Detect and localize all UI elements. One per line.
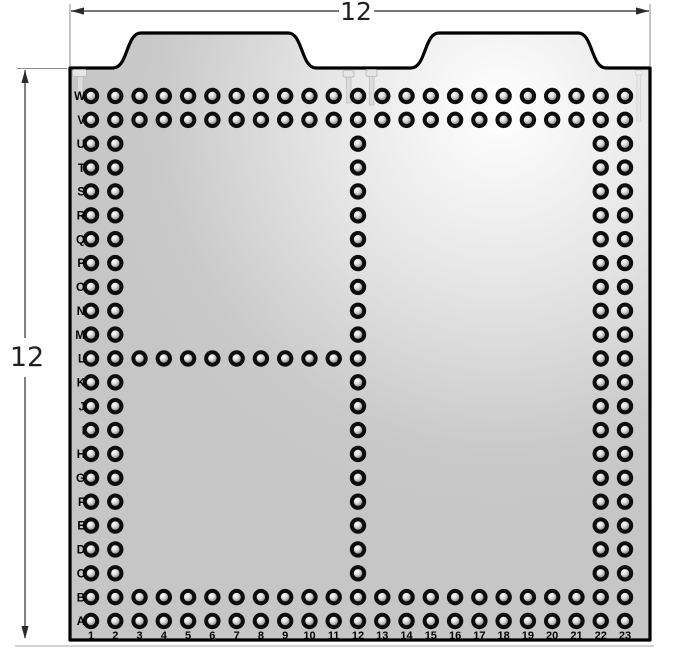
hole [83, 279, 99, 295]
row-label: R [77, 211, 86, 223]
hole [617, 422, 633, 438]
hole [131, 589, 147, 605]
hole [204, 88, 220, 104]
row-label: B [77, 592, 85, 604]
hole [350, 136, 366, 152]
hole [350, 613, 366, 629]
arrowhead-up [21, 70, 28, 83]
hole [350, 398, 366, 414]
hole [107, 374, 123, 390]
hole [471, 88, 487, 104]
arrowhead-left [71, 7, 84, 14]
column-label: 1 [88, 630, 94, 642]
column-label: 15 [425, 630, 437, 642]
left-dimension-value: 12 [10, 342, 44, 373]
hole [398, 613, 414, 629]
hole [131, 88, 147, 104]
hole [107, 565, 123, 581]
column-label: 3 [136, 630, 142, 642]
hole [423, 589, 439, 605]
hole [593, 422, 609, 438]
hole [83, 493, 99, 509]
hole [277, 112, 293, 128]
hole [617, 446, 633, 462]
hole [568, 589, 584, 605]
hole [107, 517, 123, 533]
hole [423, 88, 439, 104]
hole [83, 422, 99, 438]
hole [131, 350, 147, 366]
hole [156, 350, 172, 366]
column-label: 9 [282, 630, 288, 642]
hole [277, 589, 293, 605]
hole [350, 207, 366, 223]
hole [83, 470, 99, 486]
hole [228, 350, 244, 366]
hole [326, 350, 342, 366]
hole [350, 350, 366, 366]
hole [617, 207, 633, 223]
hole [107, 493, 123, 509]
top-dimension-value: 12 [340, 0, 372, 26]
hole [593, 255, 609, 271]
hole [204, 112, 220, 128]
hole [180, 589, 196, 605]
column-label: 17 [473, 630, 485, 642]
hole [593, 350, 609, 366]
hole [617, 589, 633, 605]
arrowhead-right [636, 7, 649, 14]
column-label: 18 [498, 630, 510, 642]
hole [423, 112, 439, 128]
hole [83, 326, 99, 342]
column-label: 11 [328, 630, 340, 642]
hole [617, 613, 633, 629]
hole [156, 112, 172, 128]
hole [471, 112, 487, 128]
hole [301, 88, 317, 104]
column-label: 14 [400, 630, 413, 642]
hole [447, 112, 463, 128]
hole [83, 446, 99, 462]
hole [83, 398, 99, 414]
hole [374, 613, 390, 629]
hole [593, 231, 609, 247]
hole [350, 159, 366, 175]
row-label: H [77, 449, 85, 461]
hole [107, 112, 123, 128]
hole [204, 613, 220, 629]
hole [350, 517, 366, 533]
hole [253, 112, 269, 128]
hole [107, 136, 123, 152]
row-label: C [77, 568, 85, 580]
hole [83, 112, 99, 128]
hole [447, 88, 463, 104]
hole [301, 613, 317, 629]
hole [350, 493, 366, 509]
row-label: N [77, 306, 85, 318]
hole [617, 350, 633, 366]
hole [374, 589, 390, 605]
hole [617, 159, 633, 175]
hole [180, 613, 196, 629]
hole [228, 589, 244, 605]
hole [107, 446, 123, 462]
hole [107, 422, 123, 438]
hole [617, 303, 633, 319]
hole [471, 613, 487, 629]
hole [398, 88, 414, 104]
hole [568, 613, 584, 629]
hole [593, 446, 609, 462]
hole [617, 88, 633, 104]
pegboard-drawing: WVUTSRQPONMLKJIHGFEDCBA 1234567891011121… [0, 0, 676, 651]
hole [83, 231, 99, 247]
hole [326, 112, 342, 128]
hole [495, 589, 511, 605]
hole [83, 183, 99, 199]
hole [350, 255, 366, 271]
hole [326, 589, 342, 605]
hole [568, 112, 584, 128]
hole [495, 88, 511, 104]
hole [107, 613, 123, 629]
hole [617, 398, 633, 414]
hole [156, 589, 172, 605]
hole [593, 183, 609, 199]
hole [107, 398, 123, 414]
hole [301, 350, 317, 366]
hole [593, 565, 609, 581]
hole [253, 589, 269, 605]
hole [301, 112, 317, 128]
column-label: 5 [185, 630, 191, 642]
hole [544, 88, 560, 104]
hole [107, 231, 123, 247]
row-label: J [79, 401, 85, 413]
hole [83, 374, 99, 390]
hole [83, 303, 99, 319]
hole [204, 589, 220, 605]
hole [617, 112, 633, 128]
hole [350, 326, 366, 342]
column-label: 19 [522, 630, 534, 642]
hole [398, 589, 414, 605]
hole [180, 350, 196, 366]
hole [495, 613, 511, 629]
hole [107, 279, 123, 295]
row-label: A [77, 616, 85, 628]
column-label: 23 [619, 630, 631, 642]
row-label: G [76, 473, 85, 485]
row-label: T [78, 163, 85, 175]
hole [156, 88, 172, 104]
hole [301, 589, 317, 605]
hole [131, 112, 147, 128]
drawing-canvas: WVUTSRQPONMLKJIHGFEDCBA 1234567891011121… [0, 0, 676, 651]
hole [83, 255, 99, 271]
hole [617, 136, 633, 152]
hole [107, 207, 123, 223]
hole [593, 279, 609, 295]
hole [83, 541, 99, 557]
hole [374, 112, 390, 128]
hole [593, 493, 609, 509]
column-label: 7 [234, 630, 240, 642]
hole [83, 207, 99, 223]
hole [398, 112, 414, 128]
hole [617, 183, 633, 199]
hole [593, 374, 609, 390]
row-label: U [77, 139, 85, 151]
row-label: P [77, 258, 85, 270]
hole [350, 446, 366, 462]
hole [107, 541, 123, 557]
row-label: K [77, 378, 86, 390]
hole [495, 112, 511, 128]
hole [423, 613, 439, 629]
hole [520, 88, 536, 104]
hole [617, 493, 633, 509]
hole [593, 541, 609, 557]
arrowhead-down [21, 626, 28, 639]
row-label: I [82, 425, 85, 437]
hole [447, 589, 463, 605]
hole [253, 88, 269, 104]
row-label: S [77, 187, 85, 199]
hole [617, 470, 633, 486]
hole [520, 112, 536, 128]
hole [617, 565, 633, 581]
column-label: 21 [570, 630, 582, 642]
hole [107, 159, 123, 175]
column-label: 13 [376, 630, 388, 642]
hole [253, 350, 269, 366]
hole [83, 517, 99, 533]
hole [544, 589, 560, 605]
hole [228, 613, 244, 629]
hole [156, 613, 172, 629]
column-label: 16 [449, 630, 461, 642]
hole [83, 136, 99, 152]
hole [617, 279, 633, 295]
hole [277, 350, 293, 366]
row-label: W [74, 91, 85, 103]
hole [107, 255, 123, 271]
hole [350, 183, 366, 199]
column-label: 10 [303, 630, 315, 642]
column-label: 6 [209, 630, 215, 642]
row-label: O [76, 282, 85, 294]
hole [277, 88, 293, 104]
hole [617, 374, 633, 390]
hole [228, 112, 244, 128]
hole [593, 517, 609, 533]
column-label: 8 [258, 630, 264, 642]
hole [83, 350, 99, 366]
hole [107, 326, 123, 342]
hole [350, 112, 366, 128]
hole [83, 613, 99, 629]
hole [350, 422, 366, 438]
hole [593, 470, 609, 486]
hole [350, 470, 366, 486]
hole [107, 589, 123, 605]
hole [593, 112, 609, 128]
row-label: V [77, 115, 85, 127]
hole [593, 589, 609, 605]
hole [326, 88, 342, 104]
hole [471, 589, 487, 605]
hole [83, 589, 99, 605]
hole [107, 303, 123, 319]
hole [617, 231, 633, 247]
hole [544, 613, 560, 629]
hole [326, 613, 342, 629]
column-label: 20 [546, 630, 558, 642]
hole [350, 541, 366, 557]
hole [520, 613, 536, 629]
column-label: 4 [161, 630, 168, 642]
hole [180, 112, 196, 128]
hole [83, 88, 99, 104]
hole [617, 541, 633, 557]
hole [107, 88, 123, 104]
hole [544, 112, 560, 128]
hole [593, 398, 609, 414]
hole [593, 207, 609, 223]
hole [593, 159, 609, 175]
hole [228, 88, 244, 104]
hole [374, 88, 390, 104]
hole [350, 589, 366, 605]
hole [83, 159, 99, 175]
column-label: 22 [595, 630, 607, 642]
column-label: 2 [112, 630, 118, 642]
hole [107, 183, 123, 199]
hole [83, 565, 99, 581]
hole [447, 613, 463, 629]
column-label: 12 [352, 630, 364, 642]
row-label: Q [76, 234, 85, 246]
row-label: L [78, 354, 85, 366]
hole [568, 88, 584, 104]
hole [277, 613, 293, 629]
hole [131, 613, 147, 629]
row-label: D [77, 545, 85, 557]
hole [350, 565, 366, 581]
dimension-left: 12 [10, 69, 67, 640]
hole [350, 279, 366, 295]
hole [350, 231, 366, 247]
hole [350, 374, 366, 390]
hole [617, 326, 633, 342]
hole [107, 350, 123, 366]
hole [593, 326, 609, 342]
hole [107, 470, 123, 486]
hole [593, 136, 609, 152]
hole [350, 303, 366, 319]
hole [204, 350, 220, 366]
row-label: F [78, 497, 85, 509]
row-label: E [77, 521, 85, 533]
hole [180, 88, 196, 104]
row-label: M [75, 330, 85, 342]
hole [617, 517, 633, 533]
hole [593, 88, 609, 104]
hole [520, 589, 536, 605]
hole [253, 613, 269, 629]
hole [350, 88, 366, 104]
hole [593, 303, 609, 319]
hole [593, 613, 609, 629]
hole [617, 255, 633, 271]
